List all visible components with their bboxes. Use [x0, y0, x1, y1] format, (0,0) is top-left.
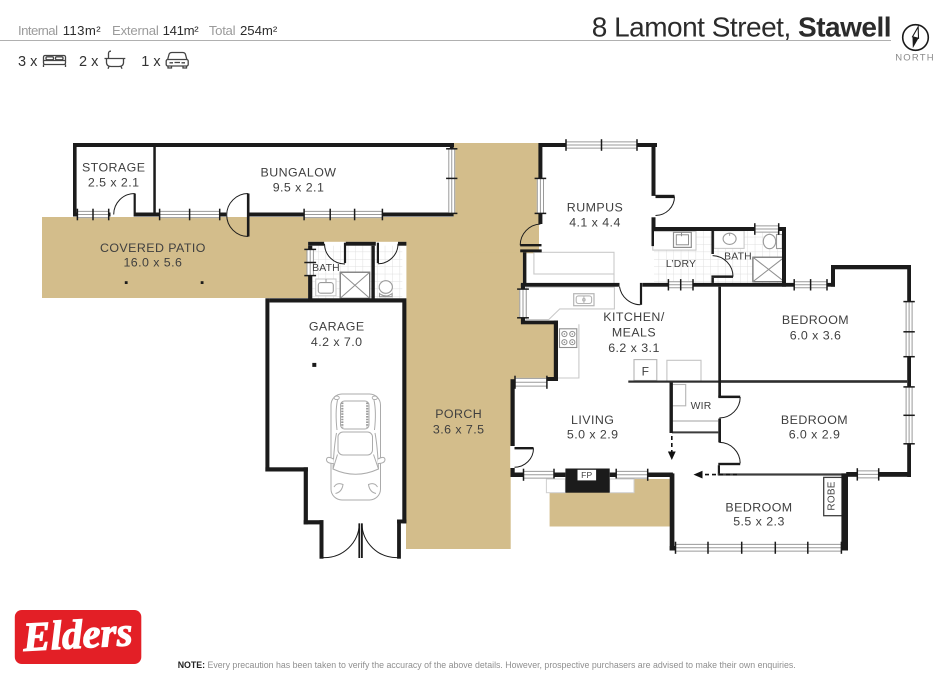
svg-text:4.1 x 4.4: 4.1 x 4.4 [569, 216, 621, 230]
svg-text:9.5 x 2.1: 9.5 x 2.1 [273, 181, 325, 195]
svg-text:NOTE: Every precaution has bee: NOTE: Every precaution has been taken to… [178, 660, 796, 670]
svg-text:8 Lamont Street, Stawell: 8 Lamont Street, Stawell [592, 12, 891, 43]
svg-text:MEALS: MEALS [612, 326, 656, 340]
svg-text:GARAGE: GARAGE [309, 320, 365, 334]
svg-text:4.2 x 7.0: 4.2 x 7.0 [311, 335, 363, 349]
svg-text:STORAGE: STORAGE [82, 161, 146, 175]
svg-text:BATH: BATH [312, 263, 340, 274]
svg-text:3.6 x 7.5: 3.6 x 7.5 [433, 423, 485, 437]
svg-text:LIVING: LIVING [571, 413, 614, 427]
svg-text:BEDROOM: BEDROOM [725, 501, 792, 515]
svg-text:F: F [642, 365, 650, 379]
svg-text:BEDROOM: BEDROOM [781, 413, 848, 427]
svg-text:BUNGALOW: BUNGALOW [261, 166, 337, 180]
svg-text:6.0 x 2.9: 6.0 x 2.9 [789, 428, 841, 442]
svg-text:3 x: 3 x [18, 54, 38, 70]
svg-text:Elders: Elders [21, 608, 134, 660]
svg-text:5.0 x 2.9: 5.0 x 2.9 [567, 428, 619, 442]
svg-text:BEDROOM: BEDROOM [782, 313, 849, 327]
svg-text:L’DRY: L’DRY [666, 259, 696, 270]
svg-text:ROBE: ROBE [827, 481, 838, 510]
svg-text:6.0 x 3.6: 6.0 x 3.6 [790, 329, 842, 343]
svg-text:RUMPUS: RUMPUS [567, 201, 623, 215]
svg-text:16.0 x 5.6: 16.0 x 5.6 [123, 256, 182, 270]
svg-text:WIR: WIR [691, 401, 712, 412]
svg-text:BATH: BATH [724, 252, 752, 263]
svg-text:6.2 x 3.1: 6.2 x 3.1 [608, 341, 660, 355]
svg-text:5.5 x 2.3: 5.5 x 2.3 [733, 515, 785, 529]
svg-text:COVERED PATIO: COVERED PATIO [100, 241, 206, 255]
svg-text:2 x: 2 x [79, 54, 99, 70]
svg-text:PORCH: PORCH [435, 407, 482, 421]
svg-text:NORTH: NORTH [895, 53, 935, 64]
svg-text:1 x: 1 x [141, 54, 161, 70]
svg-text:FP: FP [581, 470, 592, 480]
svg-text:KITCHEN/: KITCHEN/ [603, 310, 665, 324]
svg-text:2.5 x 2.1: 2.5 x 2.1 [88, 175, 140, 189]
